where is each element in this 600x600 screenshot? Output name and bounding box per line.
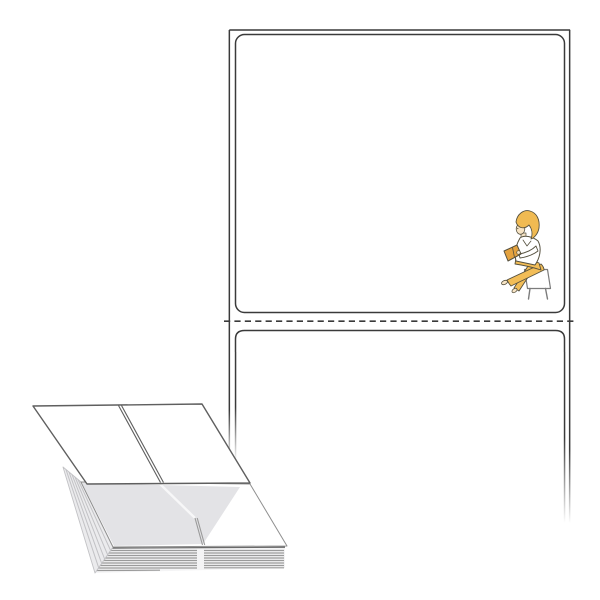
label-bottom-left-edge [235,352,237,462]
label-bottom-right-edge [564,352,566,523]
illustration-canvas [0,0,600,600]
woman-eye [517,228,518,229]
stack-front-face [95,547,285,573]
fanfold-stack [33,404,287,573]
label-bottom-sticker-top [236,331,565,353]
stack-layer-lines [96,551,284,571]
product-illustration [0,0,600,600]
liner-left-edge [229,30,231,462]
liner-right-edge [569,30,571,523]
label-top-sticker [236,35,565,313]
woman-hand [517,251,521,255]
